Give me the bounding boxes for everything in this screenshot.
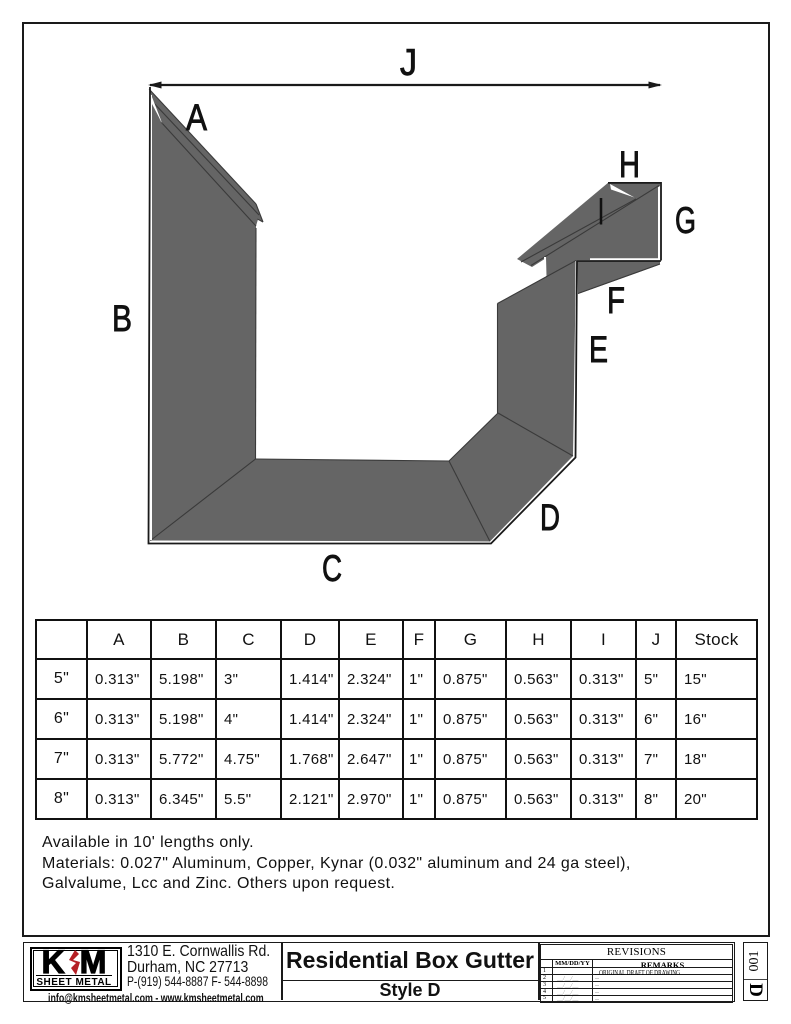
svg-text:B: B (112, 298, 132, 339)
svg-text:E: E (589, 329, 608, 370)
svg-text:I: I (598, 191, 604, 232)
svg-text:D: D (540, 497, 560, 538)
svg-text:C: C (322, 548, 342, 589)
svg-text:J: J (400, 42, 417, 83)
svg-text:F: F (607, 280, 625, 321)
svg-text:A: A (186, 97, 207, 138)
svg-text:H: H (619, 144, 640, 185)
svg-text:G: G (675, 200, 696, 241)
